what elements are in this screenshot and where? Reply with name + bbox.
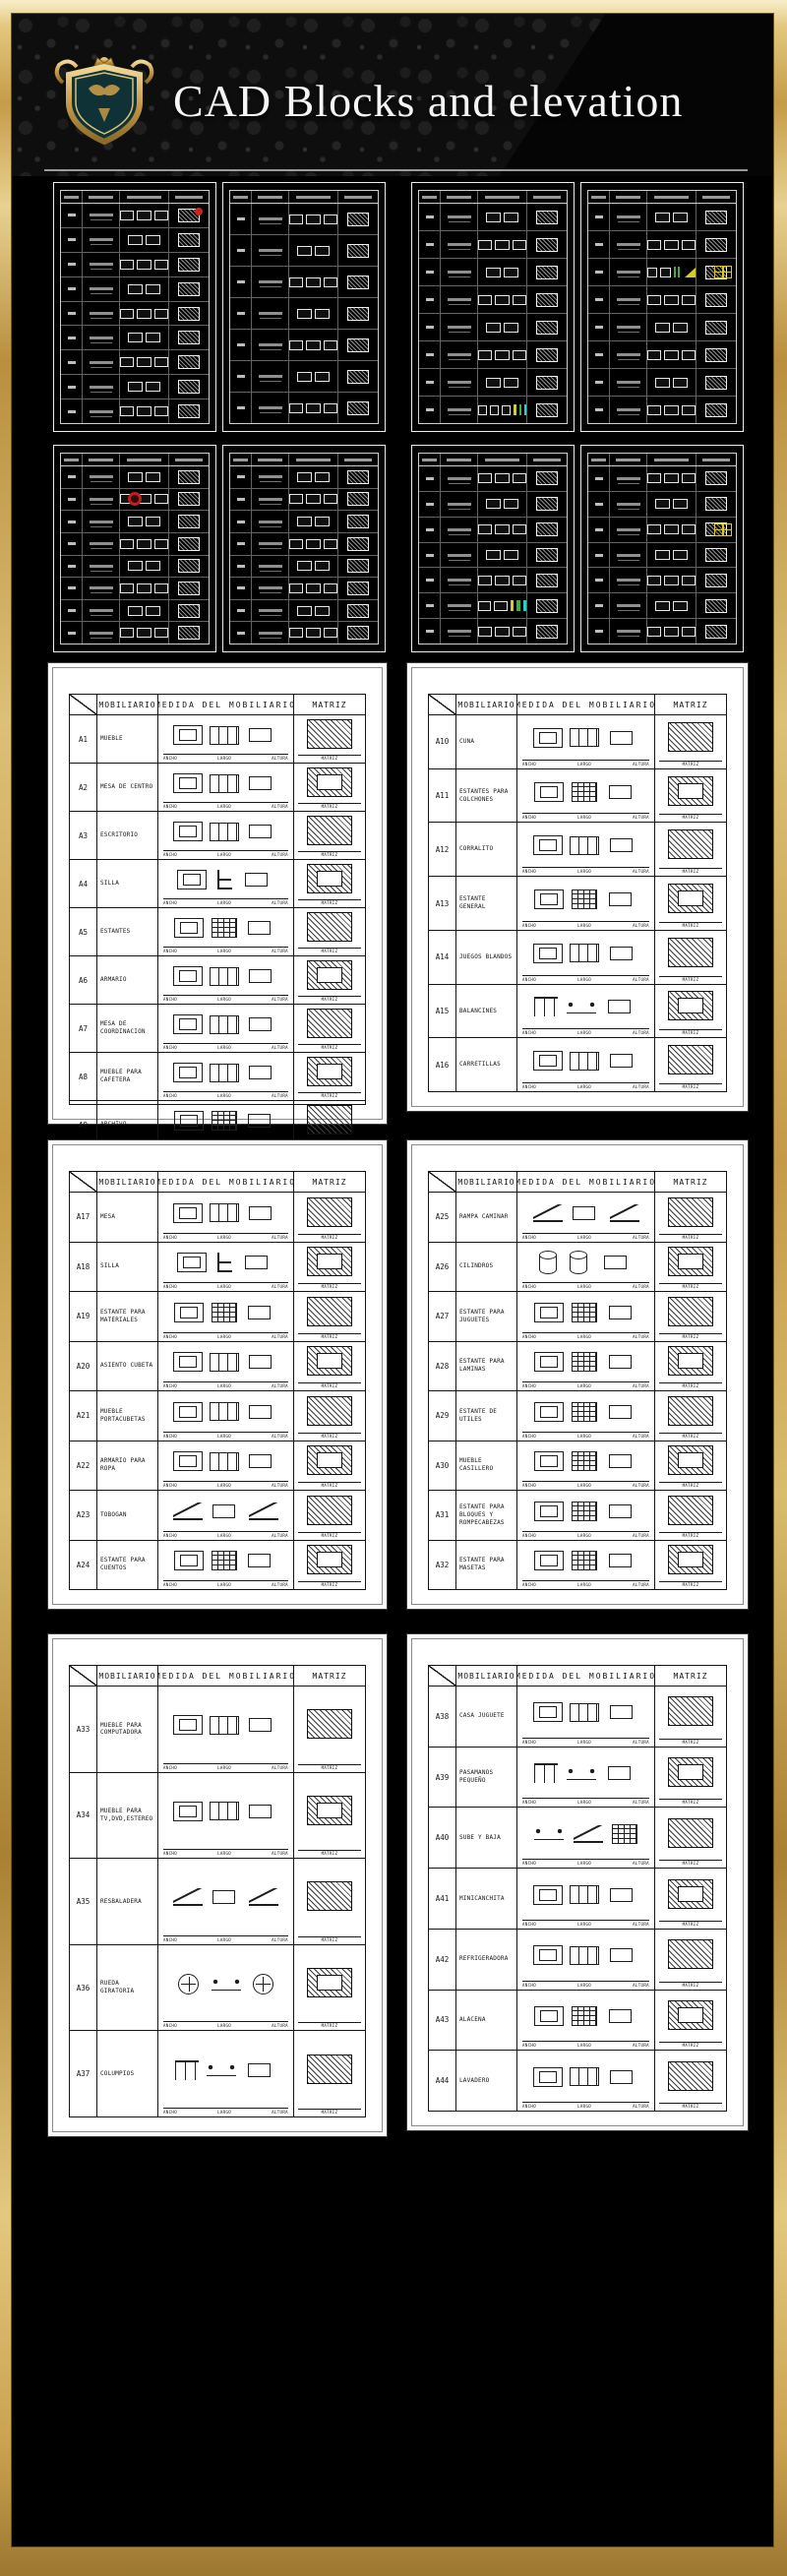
mini-id-bar [595,298,603,301]
iso-view-drawing [212,1890,235,1904]
mini-table-row [230,466,378,489]
matrix-dimension-strip: MATRIZ [659,1532,722,1538]
mini-label-cell [83,302,120,326]
iso-view-drawing [248,921,271,935]
mini-matrix-block [536,321,558,335]
matrix-column-header: MATRIZ [294,1666,365,1686]
catalog-sheet-a33-a37: MOBILIARIOMEDIDA DEL MOBILIARIOMATRIZA33… [47,1633,388,2137]
mini-block-glyph [306,583,320,593]
table-row: A44LAVADEROANCHOLARGOALTURAMATRIZ [429,2051,726,2111]
mini-table-row [419,568,567,593]
mini-block-glyph [137,539,151,549]
table-row: A2MESA DE CENTROANCHOLARGOALTURAMATRIZ [70,764,365,812]
row-name: LAVADERO [456,2051,517,2111]
catalog-sheet-a10-a16: MOBILIARIOMEDIDA DEL MOBILIARIOMATRIZA10… [406,662,749,1112]
mini-block-glyph [297,372,312,382]
dim-label: LARGO [577,1284,591,1289]
mini-drawings-cell [647,397,696,423]
mini-matrix-block [705,574,727,587]
mini-matrix-block [178,559,200,573]
mini-table-row [61,253,209,277]
mini-id-cell [588,231,610,258]
mini-matrix-block [178,307,200,321]
mini-block-glyph [478,601,491,611]
plan-view-drawing [533,1885,563,1905]
mini-id-bar [595,554,603,557]
mini-block-glyph [154,357,168,367]
row-name: RAMPA CAMINAR [456,1193,517,1242]
dim-label: ALTURA [272,949,288,953]
mini-label-bar [617,408,640,411]
mini-label-cell [610,466,647,491]
mini-id-bar [68,586,76,589]
mini-id-cell [419,492,441,517]
mini-drawings-cell [478,466,527,491]
mini-drawings-cell [478,492,527,517]
mini-matrix-cell [338,235,378,266]
dim-label: ANCHO [163,1937,177,1942]
matrix-dimension-strip: MATRIZ [298,899,361,905]
mini-label-cell [441,314,478,340]
matrix-dimension-strip: MATRIZ [659,1382,722,1388]
matrix-dimension-strip: MATRIZ [298,2109,361,2115]
mini-label-cell [610,397,647,423]
mini-table-row [419,231,567,259]
mini-matrix-cell [696,369,736,396]
mini-header-cell [696,454,736,465]
dimension-strip: ANCHOLARGOALTURA [522,1798,649,1805]
matrix-block-drawing [307,1247,352,1276]
mini-header-row [588,454,736,466]
dimension-strip: ANCHOLARGOALTURA [522,760,649,767]
dim-label: LARGO [577,2104,591,2109]
mini-matrix-block [347,537,369,551]
seesaw-view-drawing [567,1001,596,1013]
mini-table-row [588,341,736,369]
mini-label-cell [441,397,478,423]
mini-block-glyph [324,215,337,224]
matrix-block-drawing [668,1297,713,1326]
grid-view-drawing [572,782,597,802]
table-row: A32ESTANTE PARA MASETASANCHOLARGOALTURAM… [429,1541,726,1590]
mini-label-cell [252,578,289,599]
matrix-block-drawing [668,722,713,752]
mini-label-bar [617,271,640,274]
plan-view-drawing [534,889,564,909]
plan-view-drawing [533,1051,563,1071]
front-view-drawing [210,1402,239,1421]
mini-matrix-cell [169,578,209,599]
iso-view-drawing [609,1554,632,1567]
mini-label-cell [83,277,120,301]
mini-label-cell [441,619,478,644]
iso-view-drawing [248,1554,271,1567]
mini-block-glyph [513,295,526,305]
dim-label: ANCHO [522,815,536,820]
front-view-drawing [210,823,239,841]
matrix-dimension-strip: MATRIZ [298,803,361,809]
row-id: A26 [429,1243,456,1292]
table-row: A19ESTANTE PARA MATERIALESANCHOLARGOALTU… [70,1292,365,1342]
row-name: ESTANTE DE UTILES [456,1391,517,1441]
dim-label: LARGO [217,1937,231,1942]
mini-block-glyph [495,576,509,585]
matrix-block-drawing [668,1045,713,1074]
front-view-drawing [210,726,239,745]
row-id: A22 [70,1441,97,1491]
mini-block-glyph [154,583,168,593]
matrix-block-drawing [307,719,352,749]
mini-table-row [61,204,209,228]
iso-view-drawing [610,2070,633,2084]
mini-id-cell [588,518,610,542]
mini-label-cell [252,489,289,511]
mini-matrix-cell [696,259,736,285]
mini-block-glyph [146,235,160,245]
plan-view-drawing [173,1802,203,1821]
mini-block-glyph [673,378,688,388]
front-view-drawing [210,1015,239,1034]
mini-block-glyph [673,213,688,222]
row-matrix: MATRIZ [294,1005,365,1052]
mini-header-cell [338,191,378,203]
dim-label: ANCHO [522,1533,536,1538]
row-id: A31 [429,1491,456,1540]
mini-matrix-cell [169,622,209,644]
dimension-strip: ANCHOLARGOALTURA [163,802,288,809]
mini-id-cell [588,341,610,368]
row-matrix: MATRIZ [655,1038,726,1091]
mini-id-cell [61,556,83,578]
dimension-strip: ANCHOLARGOALTURA [522,2102,649,2109]
mini-block-glyph [154,260,168,270]
plan-view-drawing [534,1502,564,1521]
mini-block-glyph [664,295,678,305]
mini-block-glyph [137,628,151,638]
catalog-sheet-a25-a32: MOBILIARIOMEDIDA DEL MOBILIARIOMATRIZA25… [406,1139,749,1610]
mini-matrix-block [178,258,200,272]
mini-drawings-cell [647,286,696,313]
dim-label: ANCHO [522,1983,536,1988]
dim-label: ALTURA [633,815,649,820]
row-name: ESTANTE PARA MASETAS [456,1541,517,1590]
mini-header-cell [230,191,252,203]
row-name: MUEBLE CASILLERO [456,1441,517,1491]
row-id: A21 [70,1391,97,1441]
mini-id-cell [419,286,441,313]
dimension-strip: ANCHOLARGOALTURA [522,1432,649,1439]
table-row: A28ESTANTE PARA LAMINASANCHOLARGOALTURAM… [429,1342,726,1392]
iso-view-drawing [610,1054,633,1068]
mini-matrix-block [705,376,727,390]
dim-label: ALTURA [633,1533,649,1538]
mini-id-bar [595,630,603,633]
mini-matrix-cell [696,314,736,340]
dim-label: LARGO [217,2110,231,2115]
mini-matrix-block [347,370,369,384]
mini-id-cell [230,393,252,423]
front-view-drawing [570,944,599,962]
mini-matrix-block [347,338,369,352]
mini-label-cell [252,235,289,266]
mini-id-bar [68,312,76,315]
dim-label: ALTURA [633,1284,649,1289]
circle-view-drawing [178,1974,199,1994]
mini-label-bar [259,632,282,635]
ramp-view-drawing [533,1204,563,1222]
row-drawings: ANCHOLARGOALTURA [517,1869,655,1929]
mini-drawings-cell [289,330,338,360]
matrix-dimension-strip: MATRIZ [659,1029,722,1035]
row-drawings: ANCHOLARGOALTURA [517,1292,655,1341]
mini-drawings-cell [647,259,696,285]
mini-drawings-cell [478,397,527,423]
row-matrix: MATRIZ [294,1687,365,1772]
mini-block-glyph [306,494,320,504]
mini-block-glyph [682,295,696,305]
mini-drawings-cell [289,622,338,644]
plan-view-drawing [534,1451,564,1471]
matrix-dimension-strip: MATRIZ [659,2103,722,2109]
mini-header-cell [527,454,567,465]
dimension-strip: ANCHOLARGOALTURA [163,1233,288,1240]
mini-block-glyph [504,378,518,388]
row-matrix: MATRIZ [655,2051,726,2111]
swing-view-drawing [175,2060,199,2080]
row-id: A11 [429,769,456,823]
mini-id-bar [595,503,603,506]
mini-id-cell [61,350,83,374]
dim-label: ALTURA [633,1334,649,1339]
dim-label: ALTURA [272,1533,288,1538]
matrix-dimension-strip: MATRIZ [298,1092,361,1098]
mini-table-row [61,466,209,489]
mini-matrix-block [178,582,200,595]
mini-matrix-block [347,492,369,506]
gold-frame: CAD Blocks and elevation MOBILIARIOMEDID… [0,0,787,2576]
row-drawings: ANCHOLARGOALTURA [158,1491,294,1540]
mini-matrix-cell [527,369,567,396]
mini-block-glyph [647,473,661,483]
mini-matrix-block [705,348,727,362]
dimension-strip: ANCHOLARGOALTURA [522,1859,649,1866]
matrix-dimension-strip: MATRIZ [298,1482,361,1488]
mini-matrix-cell [696,492,736,517]
mini-matrix-cell [527,568,567,592]
dim-label: ALTURA [633,869,649,874]
mini-matrix-block [178,355,200,369]
mini-table-row [588,518,736,543]
mini-drawings-cell [120,204,169,227]
corner-cell [429,1172,456,1192]
mini-label-bar [90,263,113,266]
mini-matrix-block [347,515,369,528]
plan-view-drawing [533,944,563,963]
row-id: A5 [70,908,97,955]
row-matrix: MATRIZ [655,769,726,823]
mini-matrix-block [705,321,727,335]
mini-drawings-cell [478,259,527,285]
mini-table-row [61,600,209,623]
row-matrix: MATRIZ [294,2031,365,2116]
table-header-row: MOBILIARIOMEDIDA DEL MOBILIARIOMATRIZ [429,1172,726,1193]
front-view-drawing [570,728,599,747]
mini-drawings-cell [120,511,169,532]
mini-drawings-cell [289,466,338,488]
mini-id-cell [61,302,83,326]
matrix-dimension-strip: MATRIZ [659,1799,722,1805]
mini-block-glyph [655,323,670,333]
mini-matrix-block [536,548,558,562]
mini-id-cell [230,298,252,329]
row-id: A16 [429,1038,456,1091]
mini-block-glyph [315,472,330,482]
mini-id-cell [588,397,610,423]
row-name: ARMARIO [97,956,158,1004]
mini-label-bar [448,554,471,557]
matrix-block-drawing [307,816,352,845]
matrix-block-drawing [307,1496,352,1525]
mini-id-cell [61,204,83,227]
mini-header-cell [647,454,696,465]
mini-matrix-cell [338,361,378,392]
mini-block-glyph [655,213,670,222]
mini-block-glyph [146,606,160,616]
mini-table-row [230,578,378,600]
mini-label-cell [610,518,647,542]
row-id: A1 [70,715,97,763]
dim-label: LARGO [577,977,591,982]
dim-label: ANCHO [163,1851,177,1856]
mini-header-cell [696,191,736,203]
dim-label: ALTURA [633,977,649,982]
mini-label-cell [252,361,289,392]
dark-cad-sheet-8 [580,445,744,652]
table-row: A30MUEBLE CASILLEROANCHOLARGOALTURAMATRI… [429,1441,726,1492]
mini-block-glyph [647,405,661,415]
row-name: JUEGOS BLANDOS [456,931,517,984]
seesaw-view-drawing [534,1827,564,1840]
mini-table-row [61,228,209,253]
mini-header-cell [169,191,209,203]
mini-cad-table [229,190,379,424]
mini-table-row [588,593,736,619]
mini-label-cell [610,568,647,592]
dim-label: LARGO [577,1800,591,1805]
grid-view-drawing [212,1551,237,1570]
mini-table-row [230,235,378,267]
mini-drawings-cell [478,619,527,644]
mini-id-cell [419,619,441,644]
catalog-sheet-a17-a24: MOBILIARIOMEDIDA DEL MOBILIARIOMATRIZA17… [47,1139,388,1610]
matrix-column-header: MATRIZ [294,1172,365,1192]
matrix-block-drawing [668,1396,713,1426]
row-matrix: MATRIZ [294,1491,365,1540]
dim-label: ALTURA [272,1765,288,1770]
mini-table-row [230,330,378,361]
mini-id-cell [230,511,252,532]
mini-matrix-cell [169,489,209,511]
mini-block-glyph [120,211,134,220]
mini-label-cell [441,286,478,313]
cylinder-view-drawing [539,1252,557,1274]
mini-matrix-cell [169,204,209,227]
dim-label: ANCHO [163,804,177,809]
dim-label: ANCHO [163,1434,177,1439]
mini-label-cell [252,533,289,555]
row-drawings: ANCHOLARGOALTURA [158,1053,294,1100]
mini-label-cell [83,375,120,399]
matrix-dimension-strip: MATRIZ [659,1581,722,1587]
mini-label-bar [259,249,282,252]
mini-table-row [230,267,378,298]
dim-label: LARGO [217,1235,231,1240]
table-row: A37COLUMPIOSANCHOLARGOALTURAMATRIZ [70,2031,365,2116]
mini-table-row [230,622,378,644]
table-row: A25RAMPA CAMINARANCHOLARGOALTURAMATRIZ [429,1193,726,1243]
mini-matrix-cell [169,277,209,301]
mini-label-cell [610,543,647,568]
dimension-strip: ANCHOLARGOALTURA [163,1332,288,1339]
dim-label: ANCHO [163,1045,177,1050]
dim-label: LARGO [217,1765,231,1770]
mini-id-cell [419,231,441,258]
row-drawings: ANCHOLARGOALTURA [517,1541,655,1590]
mini-table-row [230,204,378,235]
row-drawings: ANCHOLARGOALTURA [158,908,294,955]
row-matrix: MATRIZ [294,1945,365,2031]
table-header-row: MOBILIARIOMEDIDA DEL MOBILIARIOMATRIZ [70,695,365,715]
matrix-dimension-strip: MATRIZ [659,1083,722,1089]
dim-label: ALTURA [272,804,288,809]
mini-id-bar [237,586,245,589]
mini-block-glyph [324,340,337,350]
mini-block-glyph [289,583,303,593]
front-view-drawing [570,2067,599,2086]
row-id: A33 [70,1687,97,1772]
dim-label: ALTURA [272,1093,288,1098]
row-drawings: ANCHOLARGOALTURA [158,1391,294,1441]
mini-id-bar [595,477,603,480]
mini-drawings-cell [120,578,169,599]
mini-block-glyph [128,606,143,616]
mini-id-cell [61,466,83,488]
mini-label-bar [259,586,282,589]
mini-id-bar [426,215,434,218]
yellow-window-accent [714,523,732,536]
dim-label: LARGO [217,1434,231,1439]
row-id: A24 [70,1541,97,1590]
mini-id-bar [237,498,245,501]
mini-table-row [61,622,209,644]
row-drawings: ANCHOLARGOALTURA [517,715,655,768]
mini-label-bar [617,381,640,384]
mini-id-cell [419,341,441,368]
mini-matrix-block [178,331,200,344]
dim-label: ALTURA [633,1030,649,1035]
row-drawings: ANCHOLARGOALTURA [158,1193,294,1242]
furniture-table: MOBILIARIOMEDIDA DEL MOBILIARIOMATRIZA33… [69,1665,366,2117]
plan-view-drawing [173,822,203,841]
mini-label-bar [448,215,471,218]
table-row: A24ESTANTE PARA CUENTOSANCHOLARGOALTURAM… [70,1541,365,1590]
dim-label: ANCHO [522,2043,536,2048]
table-body: A10CUNAANCHOLARGOALTURAMATRIZA11ESTANTES… [429,715,726,1091]
table-row: A38CASA JUGUETEANCHOLARGOALTURAMATRIZ [429,1687,726,1748]
mini-table-row [61,533,209,556]
mini-id-bar [68,410,76,413]
mini-label-bar [259,406,282,409]
